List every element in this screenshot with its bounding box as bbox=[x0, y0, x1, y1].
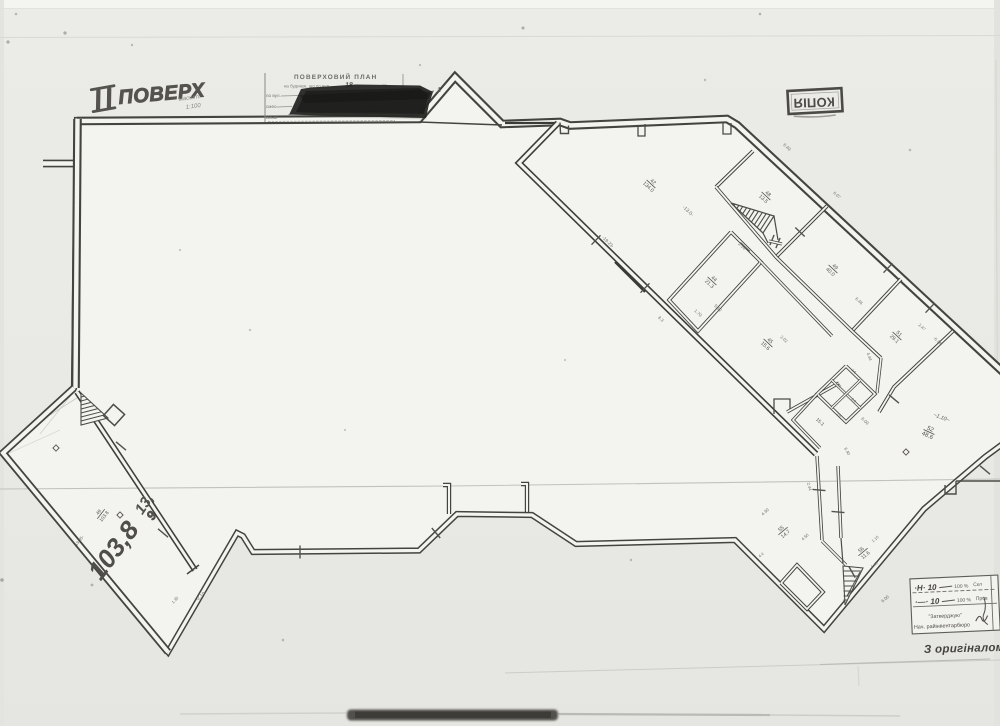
svg-text:З оригіналом: З оригіналом bbox=[924, 642, 1000, 656]
svg-text:смео: смео bbox=[266, 104, 277, 109]
svg-text:Пров: Пров bbox=[976, 596, 988, 603]
svg-text:1: 1 bbox=[437, 87, 441, 94]
svg-text:100 %: 100 % bbox=[957, 597, 972, 604]
svg-text:·Н· 10: ·Н· 10 bbox=[914, 583, 937, 593]
svg-text:по вул.: по вул. bbox=[266, 93, 281, 98]
svg-text:100 %: 100 % bbox=[954, 583, 969, 590]
svg-text:·—· 10: ·—· 10 bbox=[915, 597, 940, 607]
svg-text:ПОВЕРХОВИЙ ПЛАН: ПОВЕРХОВИЙ ПЛАН bbox=[294, 73, 377, 81]
svg-text:КОПІЯ: КОПІЯ bbox=[793, 94, 835, 110]
svg-text:Всьог: Всьог bbox=[266, 115, 278, 120]
svg-text:Скл: Скл bbox=[973, 582, 982, 588]
